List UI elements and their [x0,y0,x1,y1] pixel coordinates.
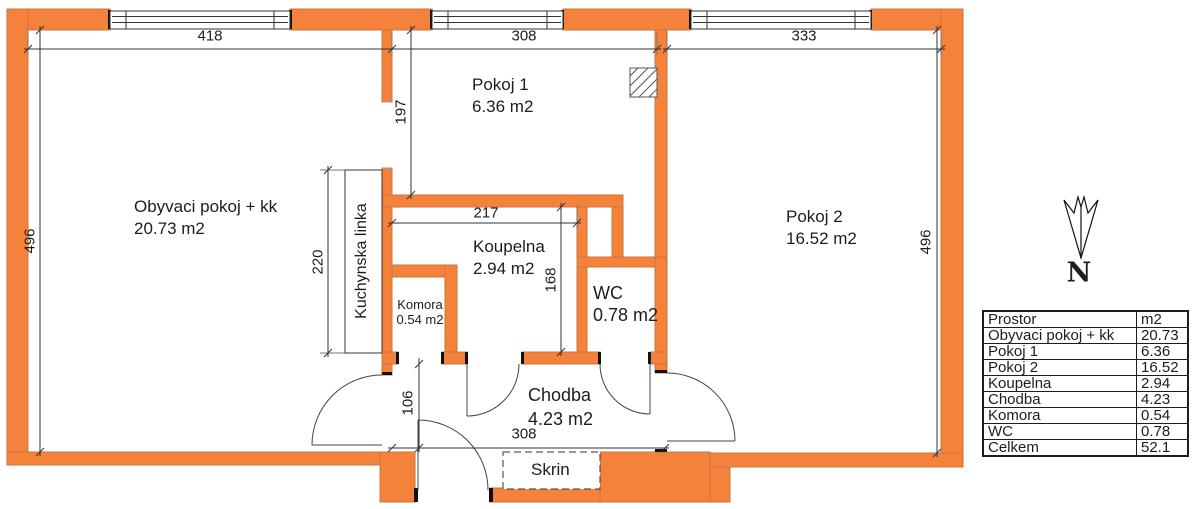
row-label: Celkem [983,440,1137,457]
table-row: Celkem52.1 [983,440,1188,457]
table-row: Obyvaci pokoj + kk20.73 [983,328,1188,344]
row-value: 0.78 [1137,424,1189,440]
dim-kitchen-length: 220 [310,249,327,274]
row-value: 16.52 [1137,360,1189,376]
dim-pokoj2-width: 333 [791,28,816,45]
room-area: 16.52 m2 [786,228,857,250]
windows-layer [110,11,871,29]
table-row: Pokoj 16.36 [983,344,1188,360]
table-row: WC0.78 [983,424,1188,440]
dim-koupelna-depth: 168 [543,267,560,292]
row-value: 0.54 [1137,408,1189,424]
room-name: Pokoj 2 [786,206,857,228]
room-area: 20.73 m2 [134,218,277,240]
room-name: Komora [394,297,446,312]
row-label: Chodba [983,392,1137,408]
room-name: Obyvaci pokoj + kk [134,196,277,218]
dim-chodba-depth: 106 [400,390,417,415]
row-value: 4.23 [1137,392,1189,408]
room-name: Chodba [528,383,593,407]
kitchen-label: Kuchynska linka [353,203,371,319]
room-label-chodba: Chodba 4.23 m2 [528,383,593,431]
window-pokoj1 [432,11,563,29]
area-legend-table: Prostorm2 Obyvaci pokoj + kk20.73 Pokoj … [982,310,1189,457]
room-label-komora: Komora 0.54 m2 [394,297,446,327]
window-pokoj2 [691,11,871,29]
room-area: 6.36 m2 [472,96,533,118]
row-value: 6.36 [1137,344,1189,360]
door-entrance [418,420,488,490]
room-label-living: Obyvaci pokoj + kk 20.73 m2 [134,196,277,240]
table-row: Prostorm2 [983,311,1188,328]
room-area: 2.94 m2 [473,258,545,280]
row-value: 20.73 [1137,328,1189,344]
room-label-koupelna: Koupelna 2.94 m2 [473,236,545,280]
dim-pokoj1-depth: 197 [393,99,410,124]
north-arrow-icon [1064,197,1098,258]
row-value: m2 [1137,311,1189,328]
table-row: Koupelna2.94 [983,376,1188,392]
row-label: Pokoj 2 [983,360,1137,376]
door-pokoj2 [667,373,735,441]
dim-koupelna-width: 217 [473,205,498,222]
row-label: Komora [983,408,1137,424]
room-name: WC [593,282,658,304]
dim-living-width: 418 [197,28,222,45]
table-row: Komora0.54 [983,408,1188,424]
row-label: Pokoj 1 [983,344,1137,360]
room-name: Koupelna [473,236,545,258]
dim-pokoj1-width: 308 [511,28,536,45]
room-label-pokoj2: Pokoj 2 16.52 m2 [786,206,857,250]
north-label: N [1067,258,1092,289]
dim-right-depth: 496 [918,229,935,254]
room-area: 0.78 m2 [593,304,658,326]
row-label: WC [983,424,1137,440]
row-label: Obyvaci pokoj + kk [983,328,1137,344]
floor-plan-page: 418 308 333 496 496 197 217 168 220 106 … [0,0,1200,509]
shaft-hatch [630,68,657,97]
skrin-label: Skrin [531,460,570,480]
room-name: Pokoj 1 [472,74,533,96]
room-area: 4.23 m2 [528,407,593,431]
door-koupelna [467,364,519,416]
door-living [312,375,382,445]
row-value: 52.1 [1137,440,1189,457]
door-wc [600,364,650,414]
window-living [110,11,290,29]
room-label-pokoj1: Pokoj 1 6.36 m2 [472,74,533,118]
row-label: Prostor [983,311,1137,328]
row-label: Koupelna [983,376,1137,392]
opening-pokoj1 [382,102,392,168]
row-value: 2.94 [1137,376,1189,392]
table-row: Chodba4.23 [983,392,1188,408]
table-row: Pokoj 216.52 [983,360,1188,376]
room-label-wc: WC 0.78 m2 [593,282,658,326]
room-area: 0.54 m2 [394,312,446,327]
dim-left-depth: 496 [22,228,39,253]
